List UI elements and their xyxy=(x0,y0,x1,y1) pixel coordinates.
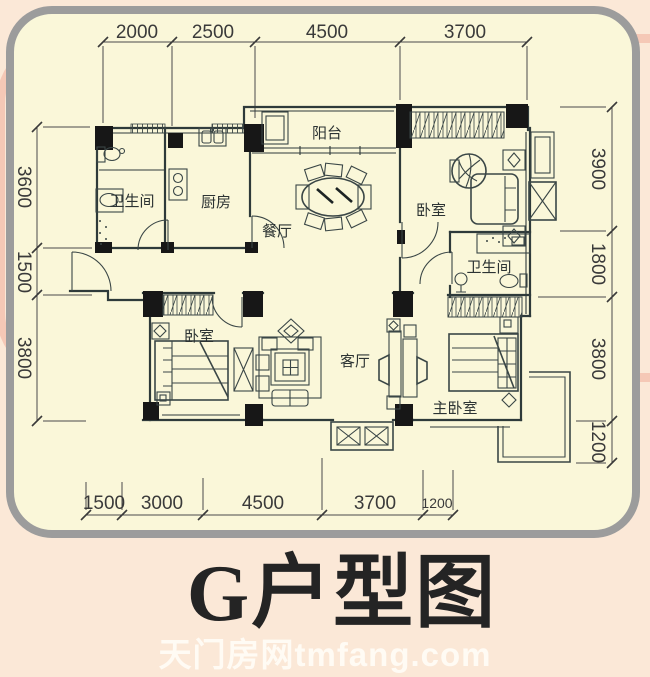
balcony-cabinet-icon xyxy=(262,112,288,144)
plan-title: G户型图 xyxy=(0,552,650,636)
bedroom-top-door-icon xyxy=(402,222,438,258)
room-label-bedroom-bottom: 卧室 xyxy=(184,328,214,345)
shower-dots xyxy=(99,220,107,245)
bay-window-icon xyxy=(331,422,393,450)
wardrobe-icon xyxy=(163,295,213,315)
dim-top-4500: 4500 xyxy=(306,22,348,43)
ac-unit-icon xyxy=(529,182,556,220)
swivel-chair-icon xyxy=(450,154,486,188)
dim-bottom-1500: 1500 xyxy=(83,493,125,514)
dim-top-2500: 2500 xyxy=(192,22,234,43)
dim-top-3700: 3700 xyxy=(444,22,486,43)
stove-icon xyxy=(169,169,187,200)
room-label-master: 主卧室 xyxy=(432,400,477,417)
dim-bottom-3000: 3000 xyxy=(141,493,183,514)
sofa-set-icon xyxy=(256,319,321,406)
dim-right-1800: 1800 xyxy=(587,243,608,285)
room-label-bedroom-top: 卧室 xyxy=(416,202,446,219)
dim-bottom-1200: 1200 xyxy=(421,495,452,511)
dining-table-icon xyxy=(296,163,371,231)
wardrobe-icon xyxy=(410,112,504,138)
room-label-bathroom-right: 卫生间 xyxy=(466,259,511,276)
dim-bottom-3700: 3700 xyxy=(354,493,396,514)
dim-right-3800: 3800 xyxy=(587,338,608,380)
pedestal-sink-icon xyxy=(455,273,467,292)
toilet-icon xyxy=(500,274,527,288)
bathroom-right-door-icon xyxy=(420,252,452,284)
tv-cabinet-icon xyxy=(379,319,401,409)
watermark: 天门房网tmfang.com xyxy=(0,628,650,676)
dim-top-2000: 2000 xyxy=(116,22,158,43)
dim-bottom-4500: 4500 xyxy=(242,493,284,514)
structural-columns xyxy=(95,104,528,426)
dim-left-3600: 3600 xyxy=(13,166,34,208)
wardrobe-icon xyxy=(448,297,522,317)
floor-plan-drawing: 2000 2500 4500 3700 1500 3000 4500 3700 … xyxy=(0,0,650,545)
window-icon xyxy=(131,124,165,133)
dim-left-1500: 1500 xyxy=(13,251,34,293)
room-label-dining: 餐厅 xyxy=(262,223,292,240)
room-label-balcony: 阳台 xyxy=(312,125,342,142)
room-label-living: 客厅 xyxy=(340,353,370,370)
bed-icon xyxy=(449,317,518,407)
room-label-kitchen: 厨房 xyxy=(201,194,231,211)
bedroom-bottom-door-icon xyxy=(212,297,242,327)
ac-closet-icon xyxy=(531,132,554,178)
dim-right-1200: 1200 xyxy=(587,421,608,463)
entry-door-icon xyxy=(72,252,111,291)
dresser-icon xyxy=(234,348,253,391)
dim-right-3900: 3900 xyxy=(587,148,608,190)
room-label-bathroom-left: 卫生间 xyxy=(109,193,154,210)
tv-cabinet-icon xyxy=(403,325,427,397)
dim-left-3800: 3800 xyxy=(13,337,34,379)
